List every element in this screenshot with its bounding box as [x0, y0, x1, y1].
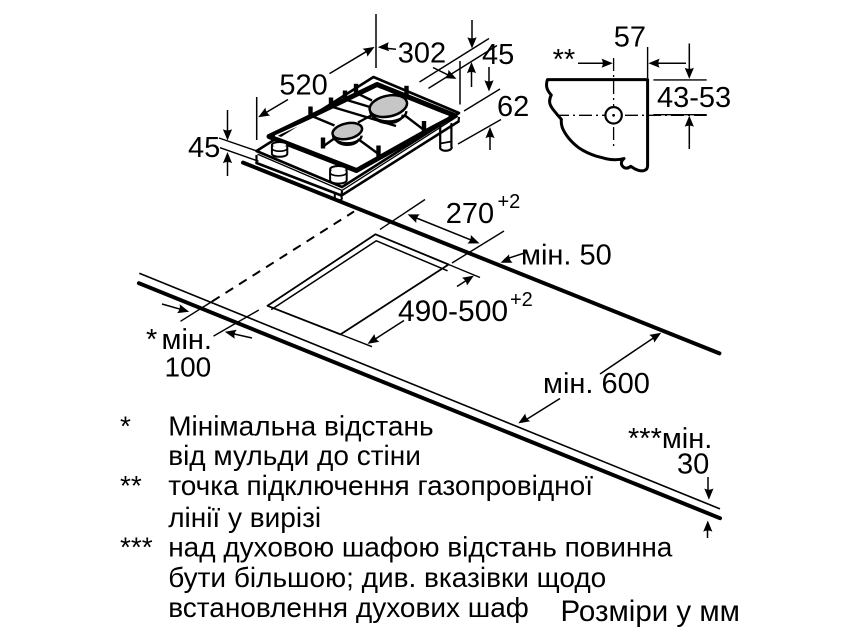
svg-text:Мінімальна відстань: Мінімальна відстань [168, 411, 433, 442]
svg-text:+2: +2 [498, 191, 521, 213]
svg-text:***: *** [120, 532, 153, 563]
svg-text:43-53: 43-53 [657, 82, 731, 114]
svg-text:*: * [120, 411, 131, 442]
svg-text:302: 302 [398, 38, 446, 70]
svg-text:**: ** [553, 44, 576, 76]
svg-text:270: 270 [446, 198, 494, 230]
svg-text:від мульди до стіни: від мульди до стіни [168, 440, 421, 471]
svg-text:встановлення духових шаф: встановлення духових шаф [168, 592, 529, 623]
svg-text:бути більшою; див. вказівки що: бути більшою; див. вказівки щодо [168, 562, 606, 593]
svg-text:520: 520 [279, 70, 327, 102]
svg-text:45: 45 [188, 132, 220, 164]
svg-text:мін. 600: мін. 600 [543, 368, 650, 400]
svg-text:мін. 50: мін. 50 [521, 240, 612, 272]
svg-text:45: 45 [482, 39, 514, 71]
svg-text:+2: +2 [510, 289, 533, 311]
svg-text:Розміри у мм: Розміри у мм [561, 595, 740, 628]
svg-text:62: 62 [497, 91, 529, 123]
svg-text:57: 57 [614, 22, 646, 54]
svg-text:*: * [146, 324, 157, 356]
svg-text:над духовою шафою відстань пов: над духовою шафою відстань повинна [168, 532, 673, 563]
svg-text:490-500: 490-500 [398, 295, 508, 328]
svg-text:лінії у вирізі: лінії у вирізі [168, 502, 321, 533]
svg-text:100: 100 [165, 351, 212, 382]
svg-text:точка підключення газопровідно: точка підключення газопровідної [168, 470, 593, 501]
svg-text:30: 30 [677, 448, 709, 480]
svg-text:**: ** [120, 470, 142, 501]
